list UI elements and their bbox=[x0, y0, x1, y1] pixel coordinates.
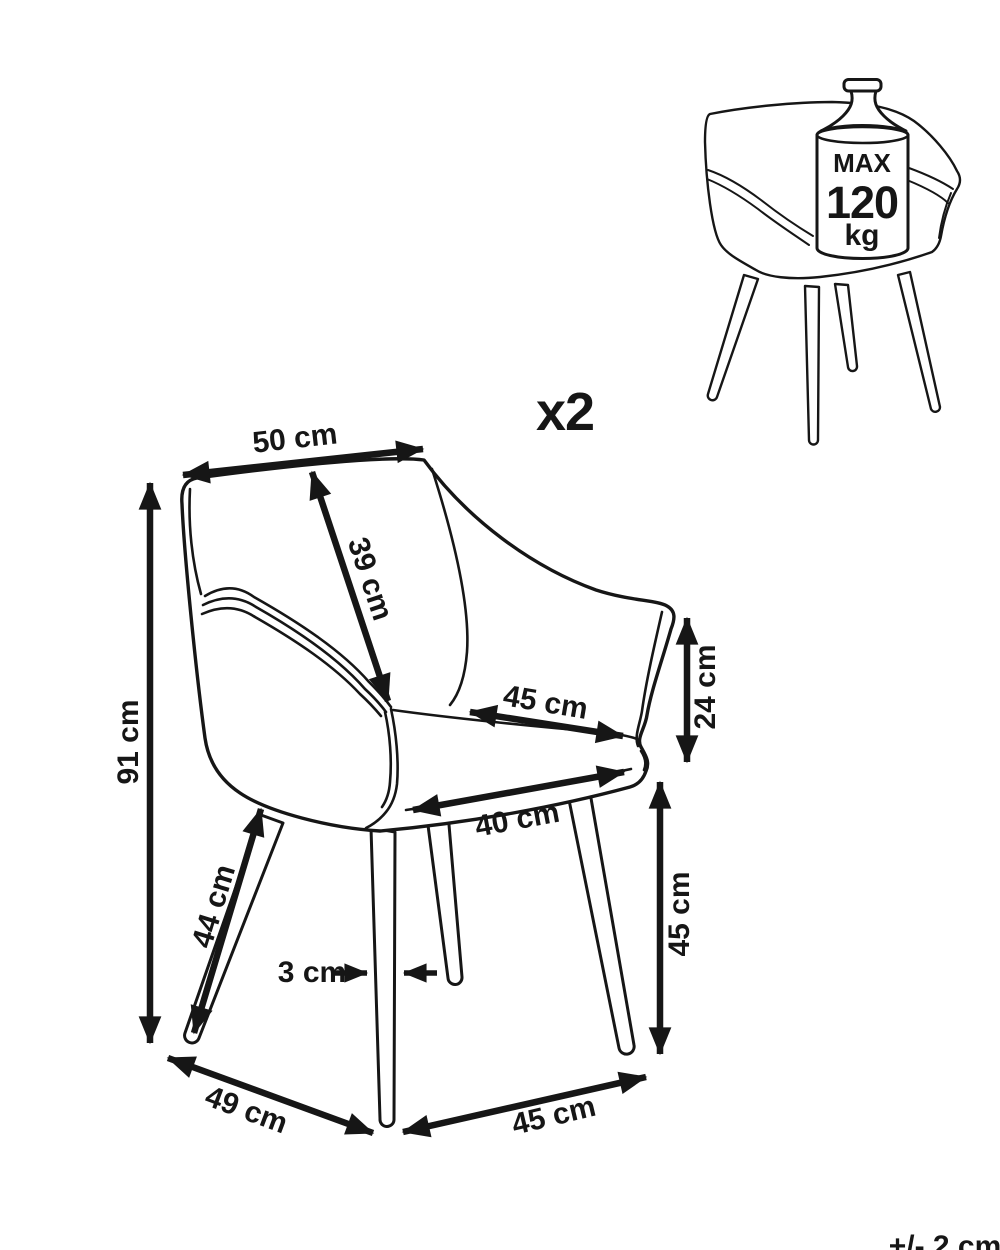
chair-dimensions-diagram: 50 cm 39 cm 91 cm 45 cm 24 cm 40 cm 44 c… bbox=[0, 0, 1000, 1250]
chair-leg-front-center bbox=[371, 828, 395, 1127]
weight-lip bbox=[844, 80, 881, 92]
dim-base-width: 45 cm bbox=[403, 1077, 646, 1142]
dim-leg-height-label: 45 cm bbox=[663, 871, 696, 956]
weight-unit-label: kg bbox=[844, 219, 879, 252]
main-chair-drawing bbox=[182, 459, 674, 1127]
diagram-canvas: 50 cm 39 cm 91 cm 45 cm 24 cm 40 cm 44 c… bbox=[0, 0, 1000, 1250]
weight-max-label: MAX bbox=[833, 148, 891, 178]
dim-leg-height: 45 cm bbox=[660, 782, 696, 1054]
quantity-label: x2 bbox=[536, 382, 594, 442]
dim-total-height-label: 91 cm bbox=[112, 699, 145, 784]
dim-top-width-label: 50 cm bbox=[251, 417, 339, 459]
dim-total-height: 91 cm bbox=[112, 483, 150, 1043]
small-chair-leg-front-left bbox=[708, 275, 758, 400]
small-chair-leg-right bbox=[898, 272, 940, 412]
small-chair-leg-rear bbox=[835, 284, 857, 371]
dim-leg-thickness: 3 cm bbox=[278, 956, 437, 989]
chair-leg-rear bbox=[426, 810, 462, 985]
dim-armrest-height-label: 24 cm bbox=[689, 644, 722, 729]
chair-leg-right bbox=[566, 781, 634, 1054]
dim-armrest-height: 24 cm bbox=[687, 618, 722, 762]
small-chair-leg-front-center bbox=[805, 286, 819, 445]
dim-base-depth: 49 cm bbox=[168, 1058, 373, 1140]
tolerance-label: +/- 2 cm bbox=[889, 1230, 1000, 1250]
